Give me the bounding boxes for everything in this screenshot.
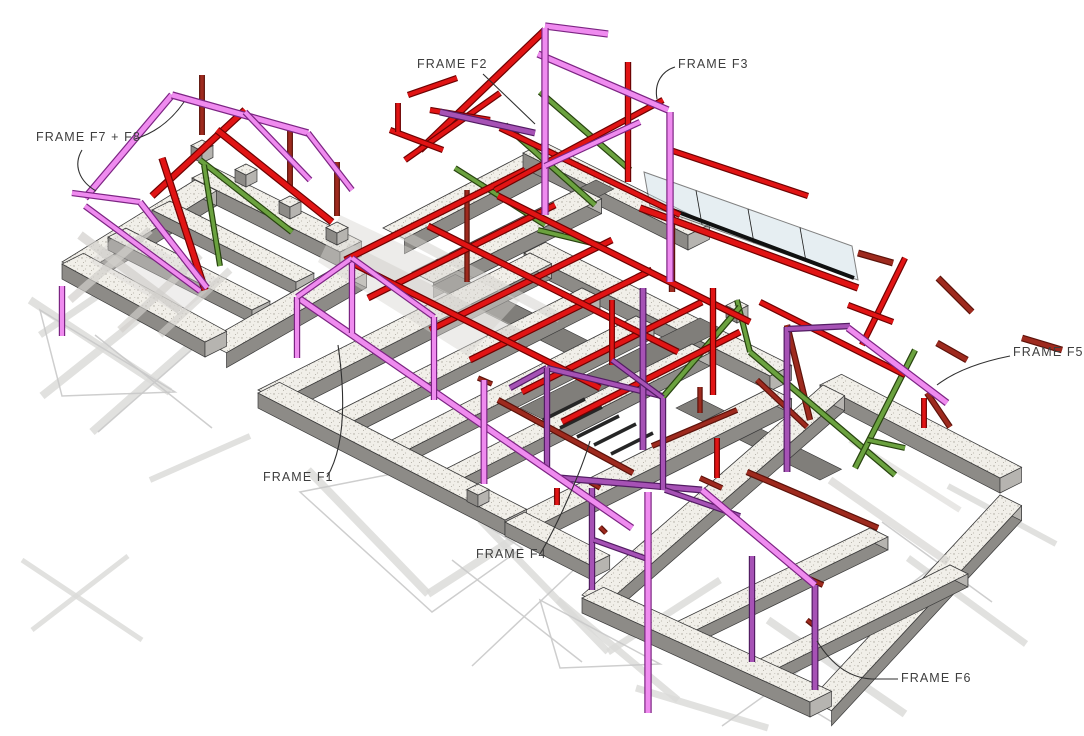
label-frame-f7-f8: FRAME F7 + F8 bbox=[36, 130, 141, 144]
label-frame-f4: FRAME F4 bbox=[476, 547, 547, 561]
model-canvas bbox=[0, 0, 1084, 736]
label-frame-f1: FRAME F1 bbox=[263, 470, 334, 484]
label-frame-f3: FRAME F3 bbox=[678, 57, 749, 71]
label-frame-f5: FRAME F5 bbox=[1013, 345, 1084, 359]
structural-3d-view: FRAME F7 + F8 FRAME F2 FRAME F3 FRAME F5… bbox=[0, 0, 1084, 736]
label-frame-f2: FRAME F2 bbox=[417, 57, 488, 71]
label-frame-f6: FRAME F6 bbox=[901, 671, 972, 685]
